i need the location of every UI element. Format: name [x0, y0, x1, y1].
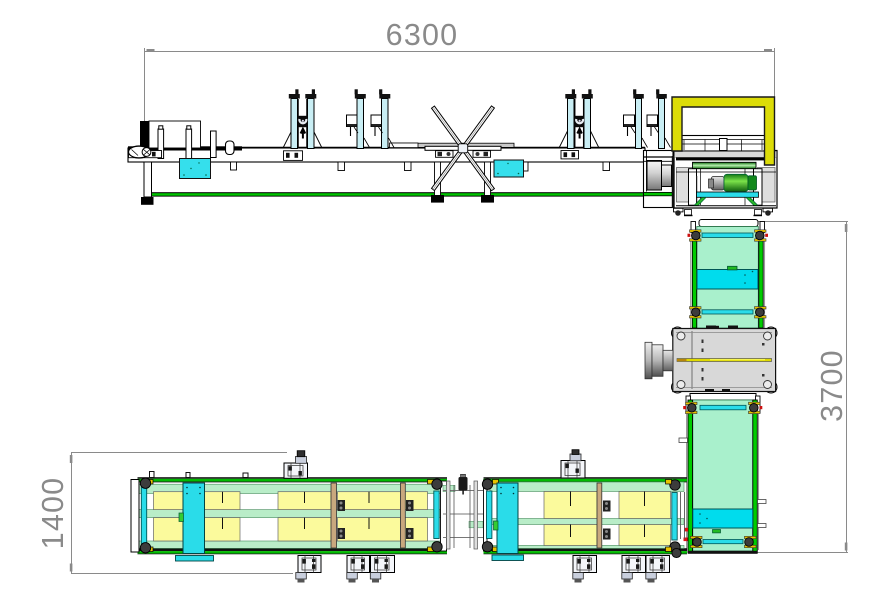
- svg-text:1400: 1400: [36, 477, 70, 550]
- svg-text:3700: 3700: [815, 349, 849, 422]
- svg-text:6300: 6300: [386, 18, 459, 52]
